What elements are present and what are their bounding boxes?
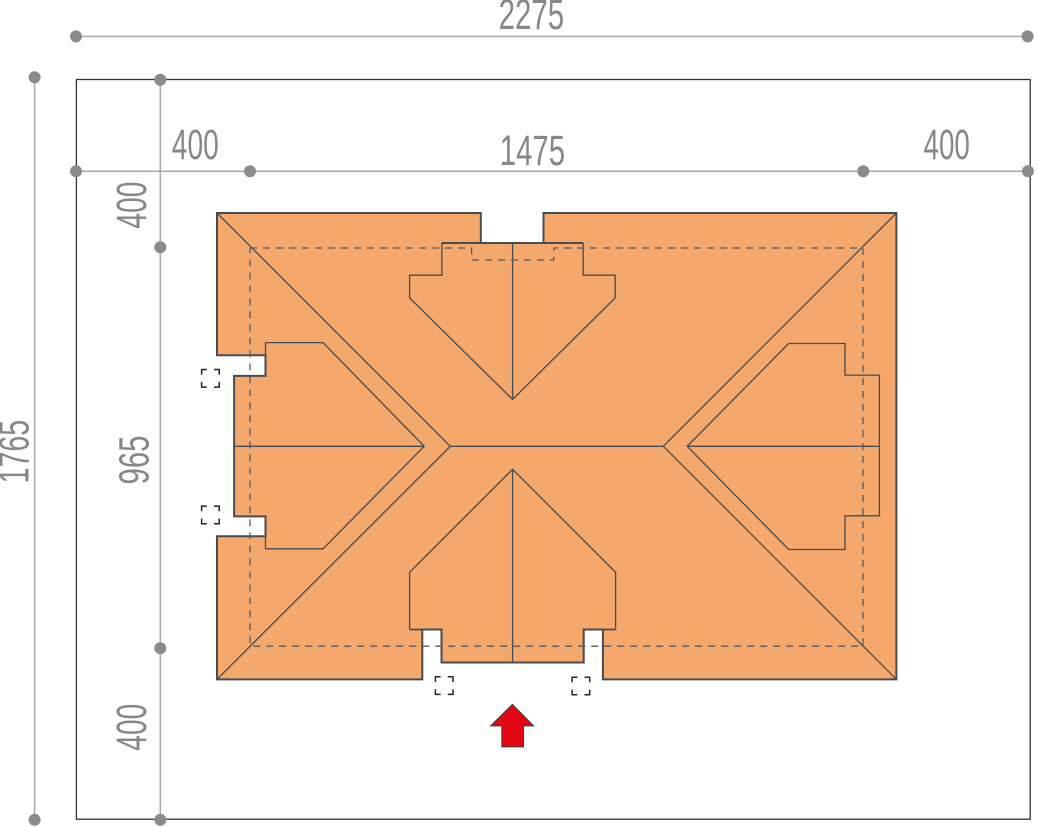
svg-text:400: 400 (109, 182, 156, 229)
svg-text:1765: 1765 (0, 420, 39, 484)
svg-text:1475: 1475 (500, 128, 565, 175)
svg-text:400: 400 (172, 122, 219, 169)
svg-text:2275: 2275 (499, 0, 565, 39)
svg-text:965: 965 (112, 436, 159, 485)
svg-text:400: 400 (924, 122, 970, 169)
svg-text:400: 400 (109, 704, 156, 751)
